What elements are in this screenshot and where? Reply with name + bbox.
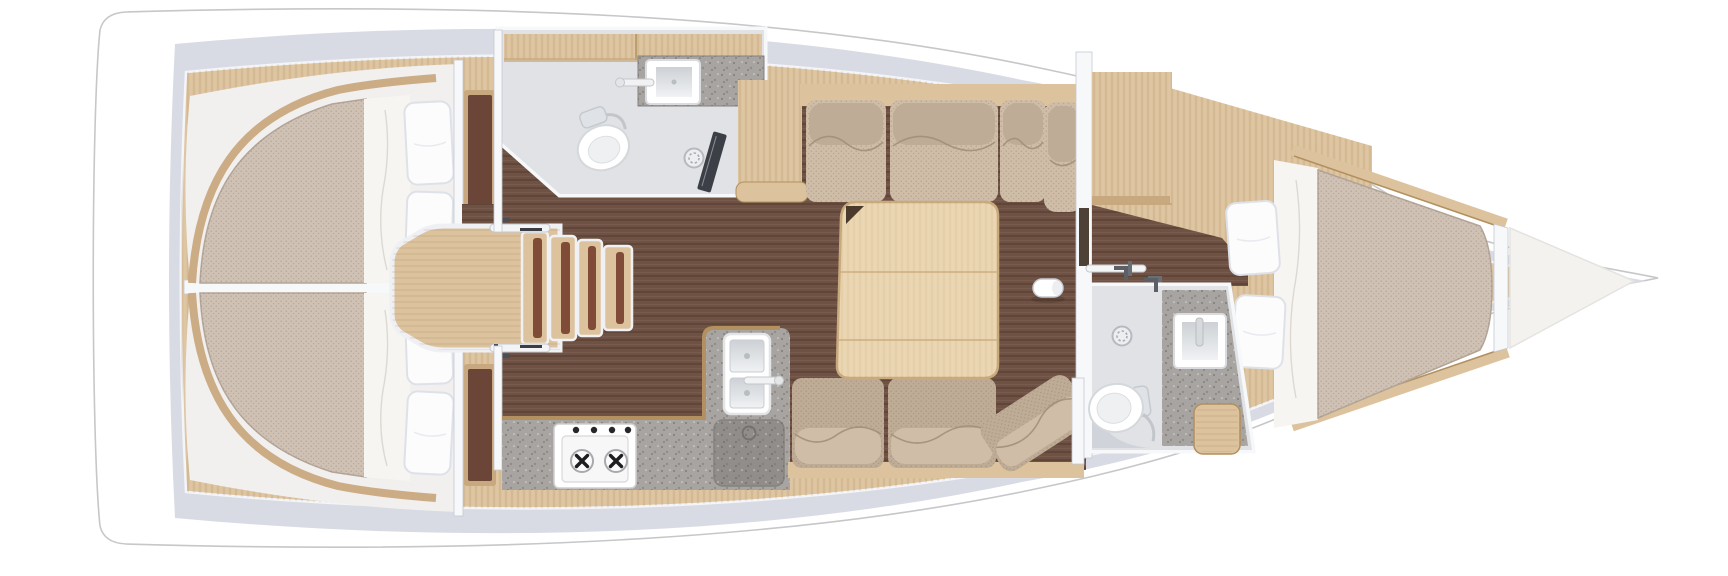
step-tread: [561, 242, 570, 334]
head-seat-grain: [1196, 406, 1238, 452]
shower-drain: [685, 149, 704, 168]
stove-knob: [591, 427, 597, 433]
settee-cushion: [792, 378, 884, 468]
step-tread: [616, 252, 624, 324]
salon-table: [837, 202, 998, 378]
bulkhead-niche: [1079, 208, 1089, 266]
forward-head: [1086, 266, 1252, 454]
step-tread: [588, 246, 596, 330]
head-faucet: [1196, 318, 1203, 346]
pillow: [404, 391, 454, 475]
side-cabinet-grain: [738, 80, 802, 186]
head-sink: [1174, 314, 1226, 368]
stove-knob: [609, 427, 615, 433]
aft-head: [499, 30, 764, 194]
anchor-locker: [1510, 228, 1634, 348]
sheet-band: [1274, 160, 1318, 428]
yacht-floorplan: [0, 0, 1728, 576]
shower-drain: [1113, 327, 1132, 346]
floorplan-canvas: [0, 0, 1728, 576]
settee-cushion: [888, 378, 996, 468]
compression-post: [1031, 279, 1065, 303]
galley-sink: [724, 334, 770, 414]
head-faucet: [616, 78, 655, 87]
settee-cushion: [890, 100, 998, 202]
stove-burner: [571, 450, 593, 472]
companionway-bulkhead-upper: [494, 30, 502, 232]
settee-cushion: [1000, 100, 1046, 202]
pillow: [1226, 200, 1281, 275]
wardrobe-top: [468, 95, 492, 207]
settee-end-wall: [1072, 378, 1084, 464]
settee-cushion: [806, 100, 886, 202]
step-tread: [533, 238, 542, 338]
galley-faucet: [744, 376, 784, 385]
galley-hatch: [714, 420, 784, 486]
wardrobe-grain: [1092, 72, 1172, 196]
settee-armrest: [736, 182, 808, 202]
stove: [554, 424, 636, 488]
companionway: [392, 218, 632, 358]
wardrobe-edge: [1092, 196, 1172, 205]
stove-burner: [605, 450, 627, 472]
stove-knob: [573, 427, 579, 433]
bow: [1494, 224, 1634, 352]
companionway-bulkhead-lower: [494, 346, 502, 470]
pillow: [404, 101, 454, 185]
stove-knob: [625, 427, 631, 433]
companionway-steps: [522, 232, 632, 344]
bow-bulkhead: [1494, 224, 1508, 352]
wardrobe-top: [468, 369, 492, 481]
